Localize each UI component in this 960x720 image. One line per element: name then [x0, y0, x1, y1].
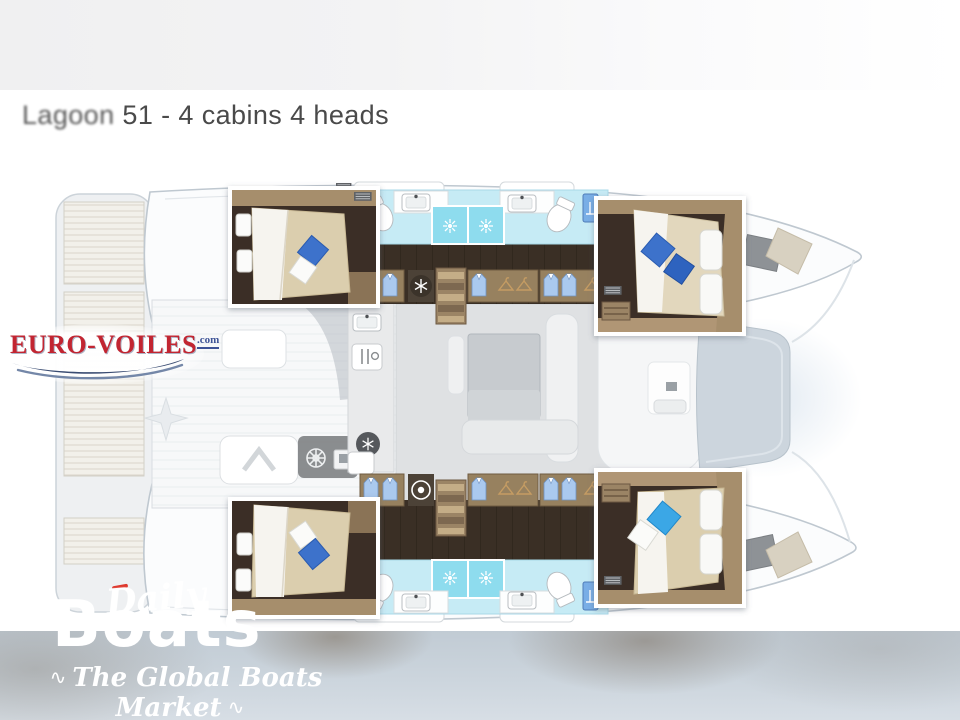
- sink-icon: [508, 592, 536, 609]
- white-pillow: [700, 274, 722, 314]
- galley-cutlery-icon: [352, 344, 382, 370]
- white-pillow: [700, 534, 722, 574]
- wardrobe-shirt-icon: [383, 478, 397, 500]
- wardrobe-shirt-icon: [562, 274, 576, 296]
- saloon-bench: [462, 420, 578, 454]
- duvet: [252, 208, 288, 300]
- shower-sunburst-icon: [443, 571, 457, 585]
- flourish-icon: ∿: [44, 665, 73, 689]
- cabin-aft-port: [594, 196, 746, 336]
- flourish-icon: ∿: [222, 695, 251, 719]
- white-pillow: [700, 490, 722, 530]
- galley: [348, 302, 394, 474]
- starboard-hull-interior: [352, 474, 608, 622]
- cabin-steps: [602, 302, 630, 320]
- eurovoiles-logo-text: EURO-VOILES: [10, 330, 197, 359]
- boat-listing-image: Lagoon 51 - 4 cabins 4 heads: [0, 0, 960, 720]
- wardrobe-shirt-icon: [562, 478, 576, 500]
- vent-grille-icon: [604, 286, 622, 295]
- hull-window: [236, 214, 251, 236]
- white-pillow: [700, 230, 722, 270]
- cabin-steps: [602, 484, 630, 502]
- wardrobe-shirt-icon: [544, 274, 558, 296]
- logo-swoosh-icon: [8, 356, 190, 380]
- sink-icon: [353, 314, 381, 331]
- cabin-aft-starboard: [594, 468, 746, 608]
- wardrobe-shirt-icon: [383, 274, 397, 296]
- head-starboard-forward: [352, 560, 608, 614]
- eurovoiles-logo: EURO-VOILES.com: [2, 322, 202, 386]
- hull-window: [237, 533, 252, 555]
- sink-icon: [508, 195, 536, 212]
- dailyboats-tagline: ∿The Global Boats Market∿: [18, 663, 348, 720]
- stairs-icon: [436, 480, 466, 536]
- shower-sunburst-icon: [479, 219, 493, 233]
- head-port-forward: [352, 190, 608, 244]
- stairs-icon: [436, 268, 466, 324]
- cabin-forward-port: [228, 186, 380, 308]
- cockpit-table: [222, 330, 286, 368]
- wardrobe-shirt-icon: [472, 274, 486, 296]
- wardrobe-shirt-icon: [364, 478, 378, 500]
- sink-icon: [402, 194, 430, 211]
- shower-sunburst-icon: [443, 219, 457, 233]
- sink-icon: [402, 594, 430, 611]
- cockpit-table: [220, 436, 298, 484]
- stern-platform: [56, 194, 154, 612]
- teak-slat-panel: [64, 518, 144, 564]
- hull-window: [237, 250, 252, 272]
- vent-grille-icon: [354, 192, 372, 201]
- dailyboats-boats: Boats: [52, 588, 262, 662]
- wardrobe-shirt-icon: [544, 478, 558, 500]
- corridor: [358, 500, 608, 562]
- wardrobe-shirt-icon: [472, 478, 486, 500]
- eurovoiles-logo-suffix: .com: [197, 334, 219, 349]
- shower-sunburst-icon: [479, 571, 493, 585]
- vent-grille-icon: [604, 576, 622, 585]
- helm-wheel-icon: [307, 449, 325, 467]
- teak-slat-panel: [64, 202, 144, 284]
